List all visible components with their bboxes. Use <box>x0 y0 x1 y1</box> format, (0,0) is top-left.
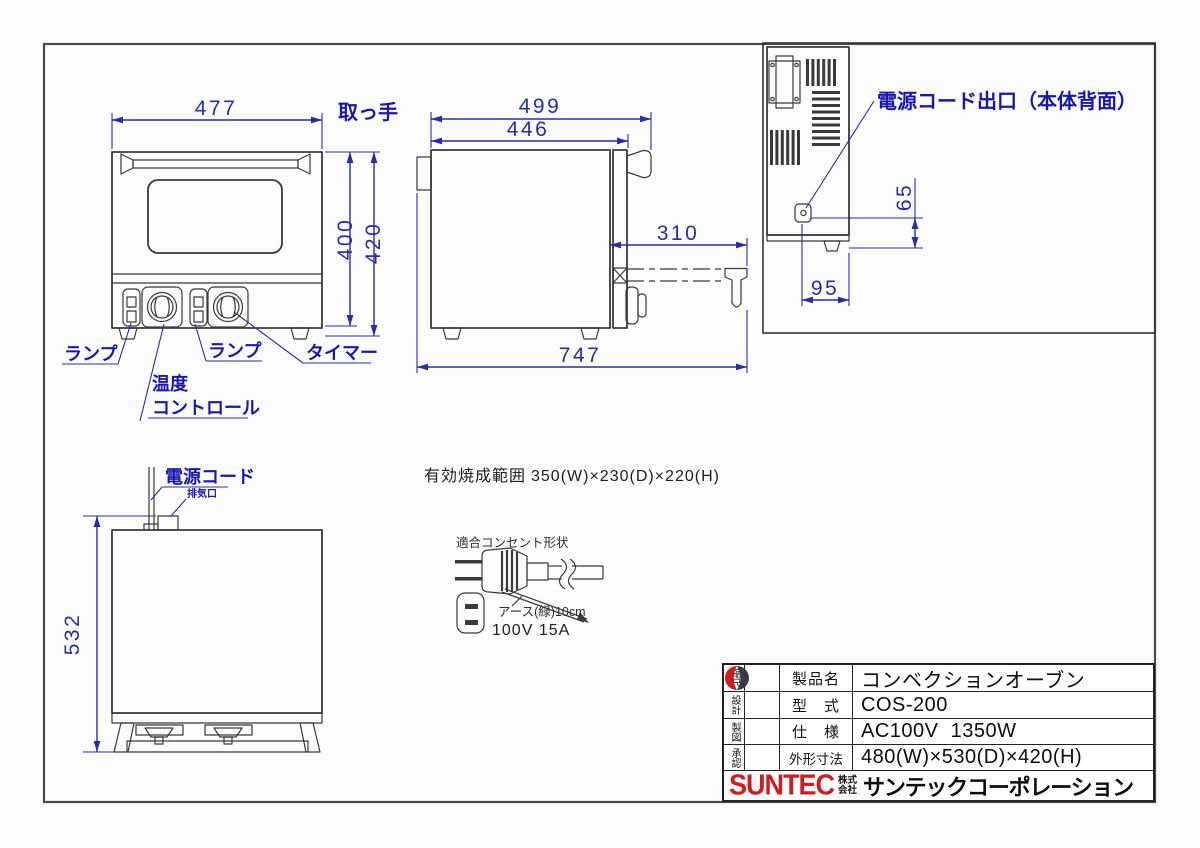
brand-wordmark: SUNTEC <box>729 771 834 799</box>
company-logo-row: SUNTEC 株式会社 サンテックコーポレーション <box>724 771 1153 800</box>
title-block-side-design: 設計 <box>724 692 745 719</box>
vent-label: 排気口 <box>187 487 217 500</box>
plug-prong-top <box>455 560 482 564</box>
cord-outlet <box>795 204 811 222</box>
cord-break-1 <box>559 559 566 589</box>
foot-side-left <box>443 328 461 339</box>
lamp-right <box>190 289 207 326</box>
vent-slats-middle <box>812 91 840 146</box>
door-handle-side <box>627 150 651 177</box>
handle-bar <box>133 160 298 168</box>
title-block-sign-draft <box>745 719 780 745</box>
drawing-sheet: 477 取っ手 400 420 ランプ 温度 コントロール ランプ タイマー <box>0 0 1200 848</box>
plug-title: 適合コンセント形状 <box>456 535 569 550</box>
model-label: 型 式 <box>780 692 853 719</box>
dim-499: 499 <box>519 95 562 118</box>
temp-label-line1: 温度 <box>152 373 189 394</box>
dim-747: 747 <box>559 344 602 367</box>
handle-end-right <box>298 154 310 174</box>
exhaust-vent <box>158 516 178 530</box>
side-view: 499 446 310 747 <box>417 95 747 373</box>
foot-front-right <box>291 328 309 339</box>
plug-prong-bottom <box>455 577 482 581</box>
back-foot <box>824 241 840 251</box>
rear-cord-bump <box>417 157 431 190</box>
top-view: 電源コード 排気口 532 <box>61 466 322 752</box>
model-value: COS-200 <box>853 692 1153 719</box>
dim-532: 532 <box>61 613 84 656</box>
front-edge-band <box>112 713 322 723</box>
cord-break-2 <box>568 559 575 589</box>
cord-outlet-label: 電源コード出口（本体背面） <box>877 89 1137 113</box>
dim-310: 310 <box>657 222 700 245</box>
lamp-left-label: ランプ <box>64 343 118 364</box>
door-side <box>613 150 627 328</box>
company-name: サンテックコーポレーション <box>863 771 1133 800</box>
product-name-label: 製品名 <box>780 665 853 692</box>
oven-body-side <box>431 150 610 328</box>
dim-477: 477 <box>195 97 238 120</box>
title-block: 縮尺 製品名 コンベクションオーブン 設計 型 式 COS-200 製図 仕 様… <box>722 663 1155 802</box>
plug-neck <box>527 563 548 580</box>
dim-65: 65 <box>893 183 916 211</box>
leg-right-top <box>300 723 320 752</box>
plug-drawing: アース(緑)10cm 100V 15A <box>455 548 603 639</box>
ground-label: アース(緑)10cm <box>498 604 586 619</box>
rating-label: 100V 15A <box>492 622 570 639</box>
front-view: 477 取っ手 400 420 ランプ 温度 コントロール ランプ タイマー <box>62 97 398 421</box>
temp-label-line2: コントロール <box>152 398 260 418</box>
power-cord-label: 電源コード <box>165 466 255 487</box>
handle-end-left <box>121 154 133 174</box>
front-base-bar <box>127 741 308 752</box>
title-block-sign-scale <box>745 665 780 692</box>
notes: 有効焼成範囲 350(W)×230(D)×220(H) 適合コンセント形状 <box>424 467 720 639</box>
terminal-cover <box>769 56 800 108</box>
leg-left-top <box>114 723 134 752</box>
dim-400: 400 <box>334 218 357 261</box>
vent-slats-top <box>806 59 836 86</box>
door-open-handle <box>725 269 747 308</box>
plug-body <box>482 548 527 594</box>
product-name-value: コンベクションオーブン <box>853 665 1153 692</box>
company-prefix: 株式会社 <box>838 776 859 795</box>
dimensions-value: 480(W)×530(D)×420(H) <box>853 745 1153 771</box>
foot-side-right <box>581 328 599 339</box>
back-view: 電源コード出口（本体背面） 65 95 <box>763 43 1155 333</box>
oven-body-top <box>112 530 322 713</box>
lamp-left <box>123 289 140 326</box>
spec-label: 仕 様 <box>780 719 853 745</box>
outlet-symbol <box>457 593 484 633</box>
dimensions-label: 外形寸法 <box>780 745 853 771</box>
oven-body-front <box>112 152 322 328</box>
title-block-sign-design <box>745 692 780 719</box>
title-block-rows: 縮尺 製品名 コンベクションオーブン 設計 型 式 COS-200 製図 仕 様… <box>724 665 1153 771</box>
handle-label: 取っ手 <box>338 100 398 124</box>
temperature-knob <box>142 287 182 327</box>
timer-knob <box>208 287 248 327</box>
title-block-side-approve: 承認 <box>724 745 745 771</box>
baking-range-value: 350(W)×230(D)×220(H) <box>531 468 720 485</box>
timer-label: タイマー <box>306 343 378 363</box>
knob-cap-side <box>638 294 646 317</box>
dim-420: 420 <box>362 222 385 265</box>
door-window <box>148 180 282 253</box>
dim-95: 95 <box>811 277 839 300</box>
spec-value: AC100V 1350W <box>853 719 1153 745</box>
title-block-sign-approve <box>745 745 780 771</box>
lamp-right-label: ランプ <box>208 340 262 361</box>
title-block-side-draft: 製図 <box>724 719 745 745</box>
dim-446: 446 <box>507 118 550 141</box>
vent-slats-left <box>770 130 800 165</box>
baking-range-label: 有効焼成範囲 <box>424 467 526 485</box>
